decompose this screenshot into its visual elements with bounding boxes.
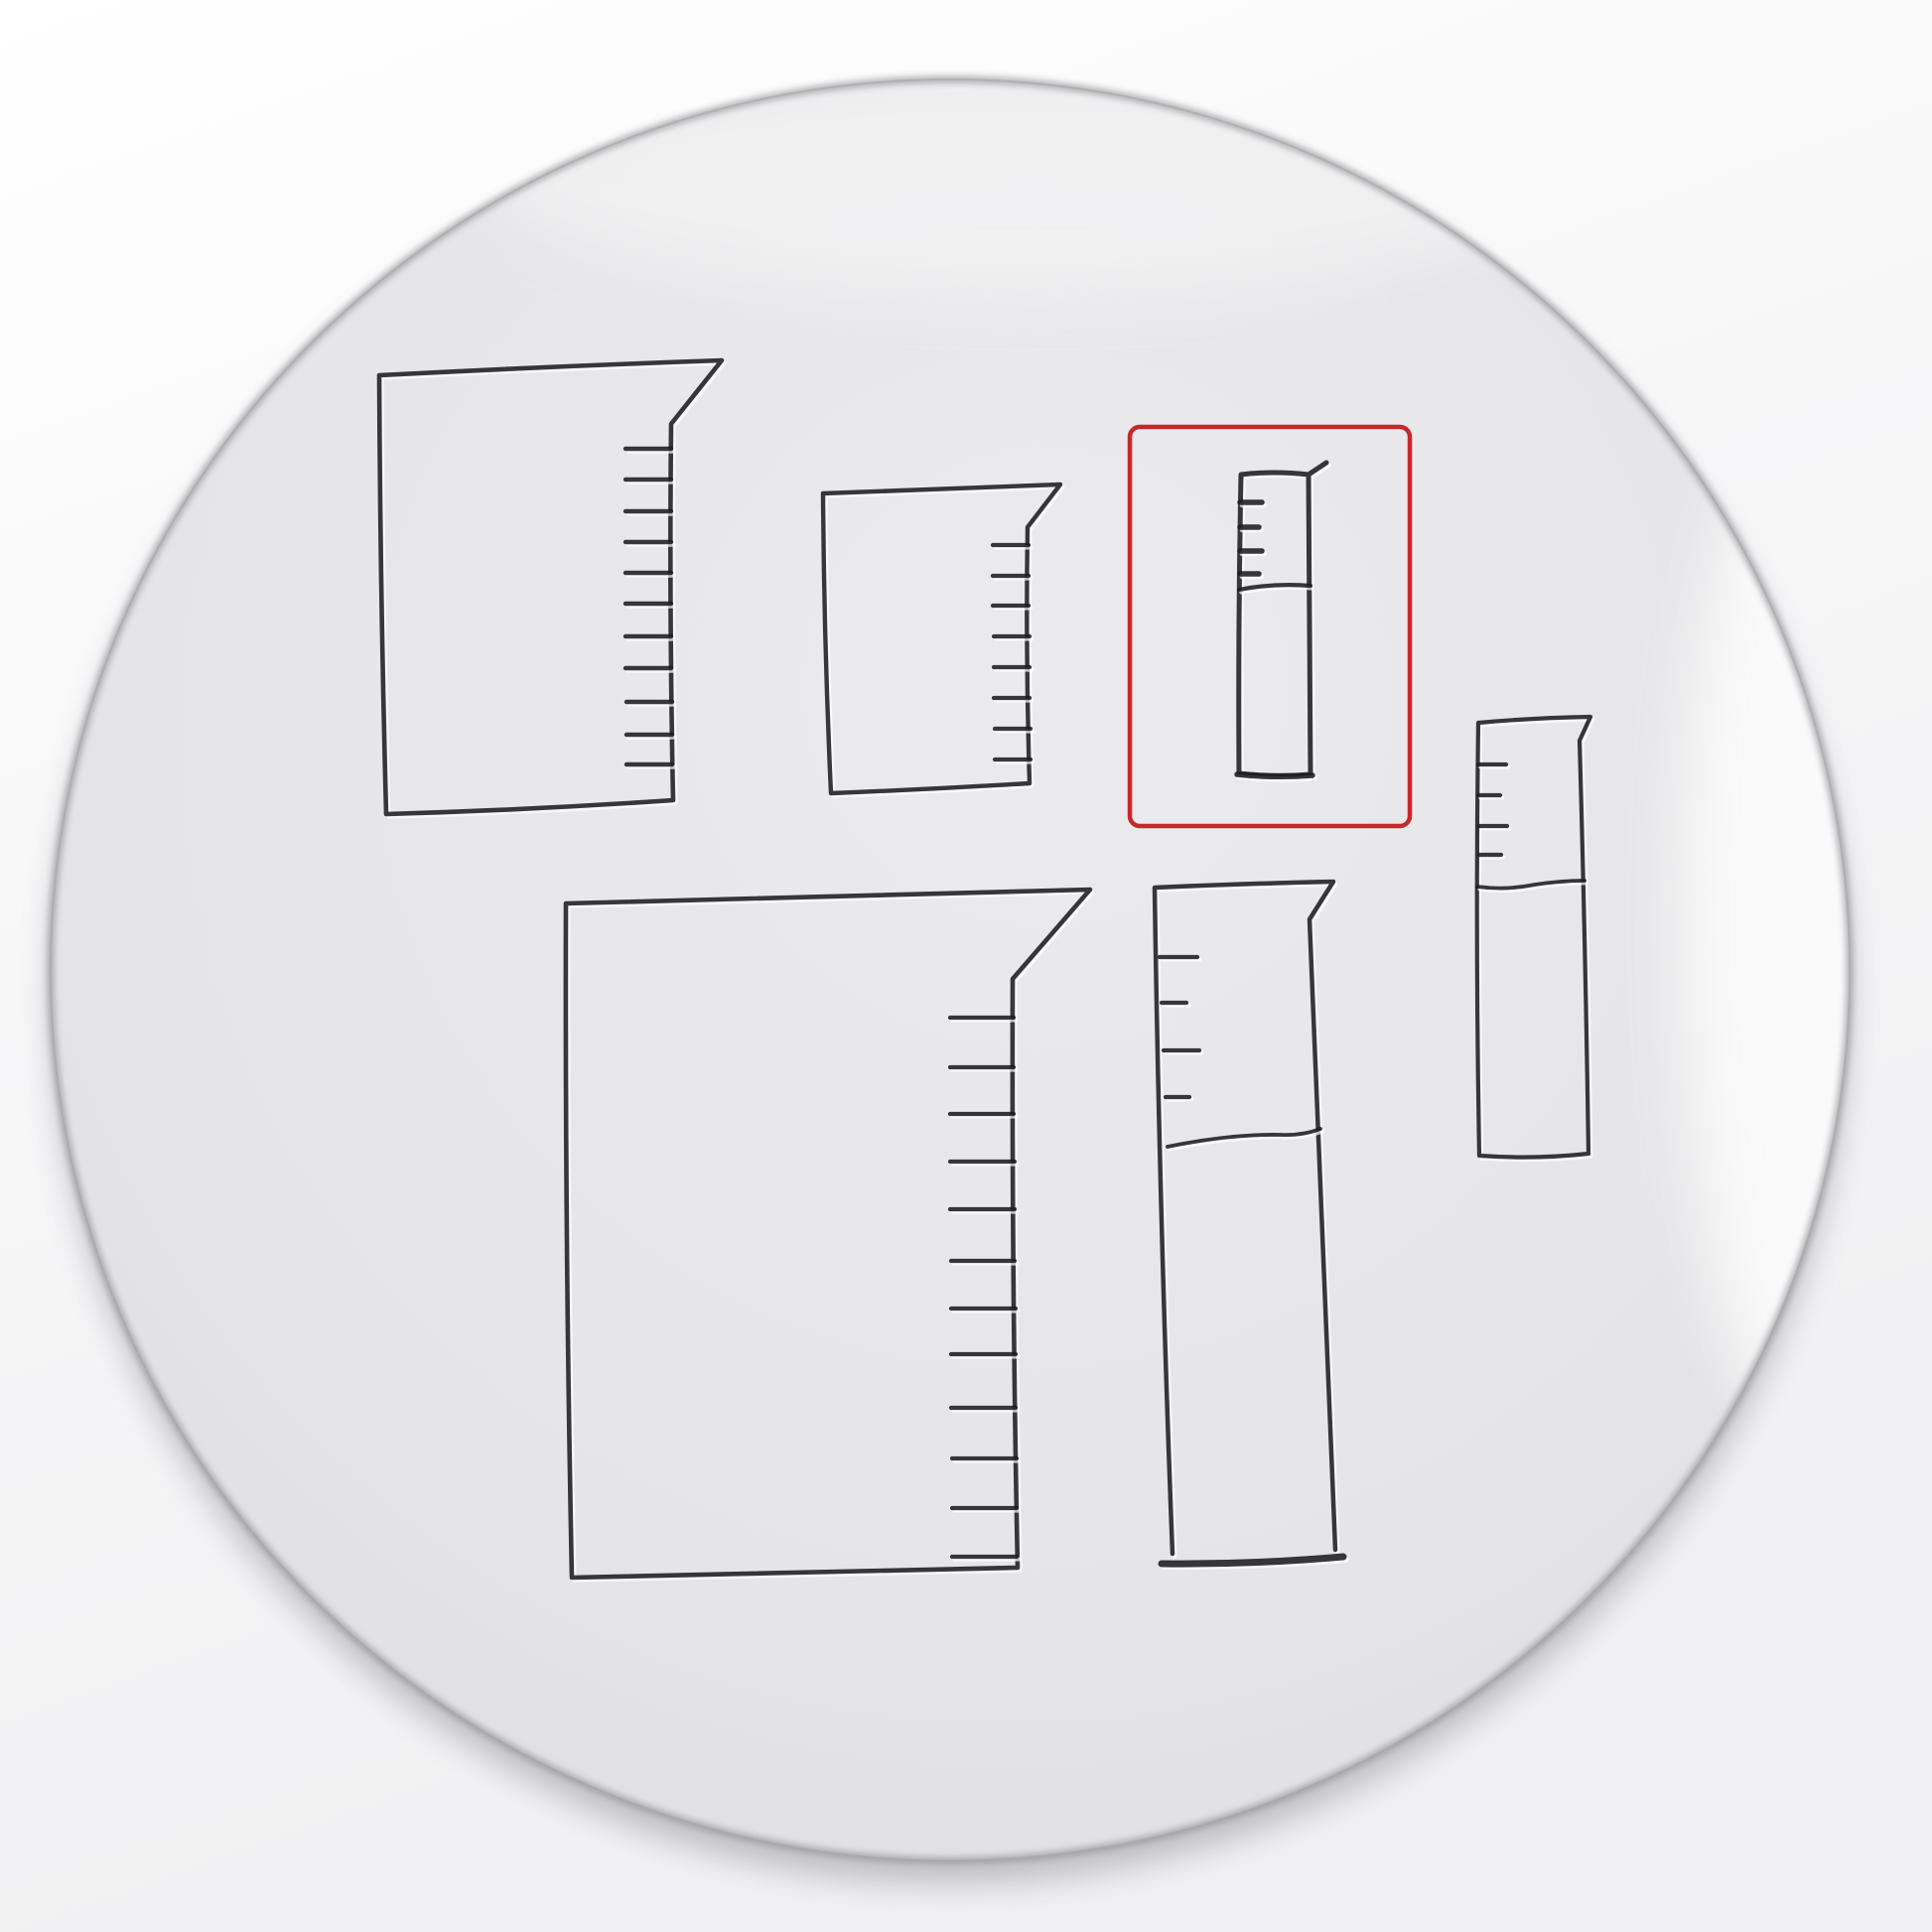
photo-canvas — [0, 0, 1932, 1932]
metal-disc — [51, 79, 1850, 1861]
cylinder-small-highlighted-base — [1237, 774, 1312, 776]
metal-disc-photo — [0, 0, 1932, 1932]
